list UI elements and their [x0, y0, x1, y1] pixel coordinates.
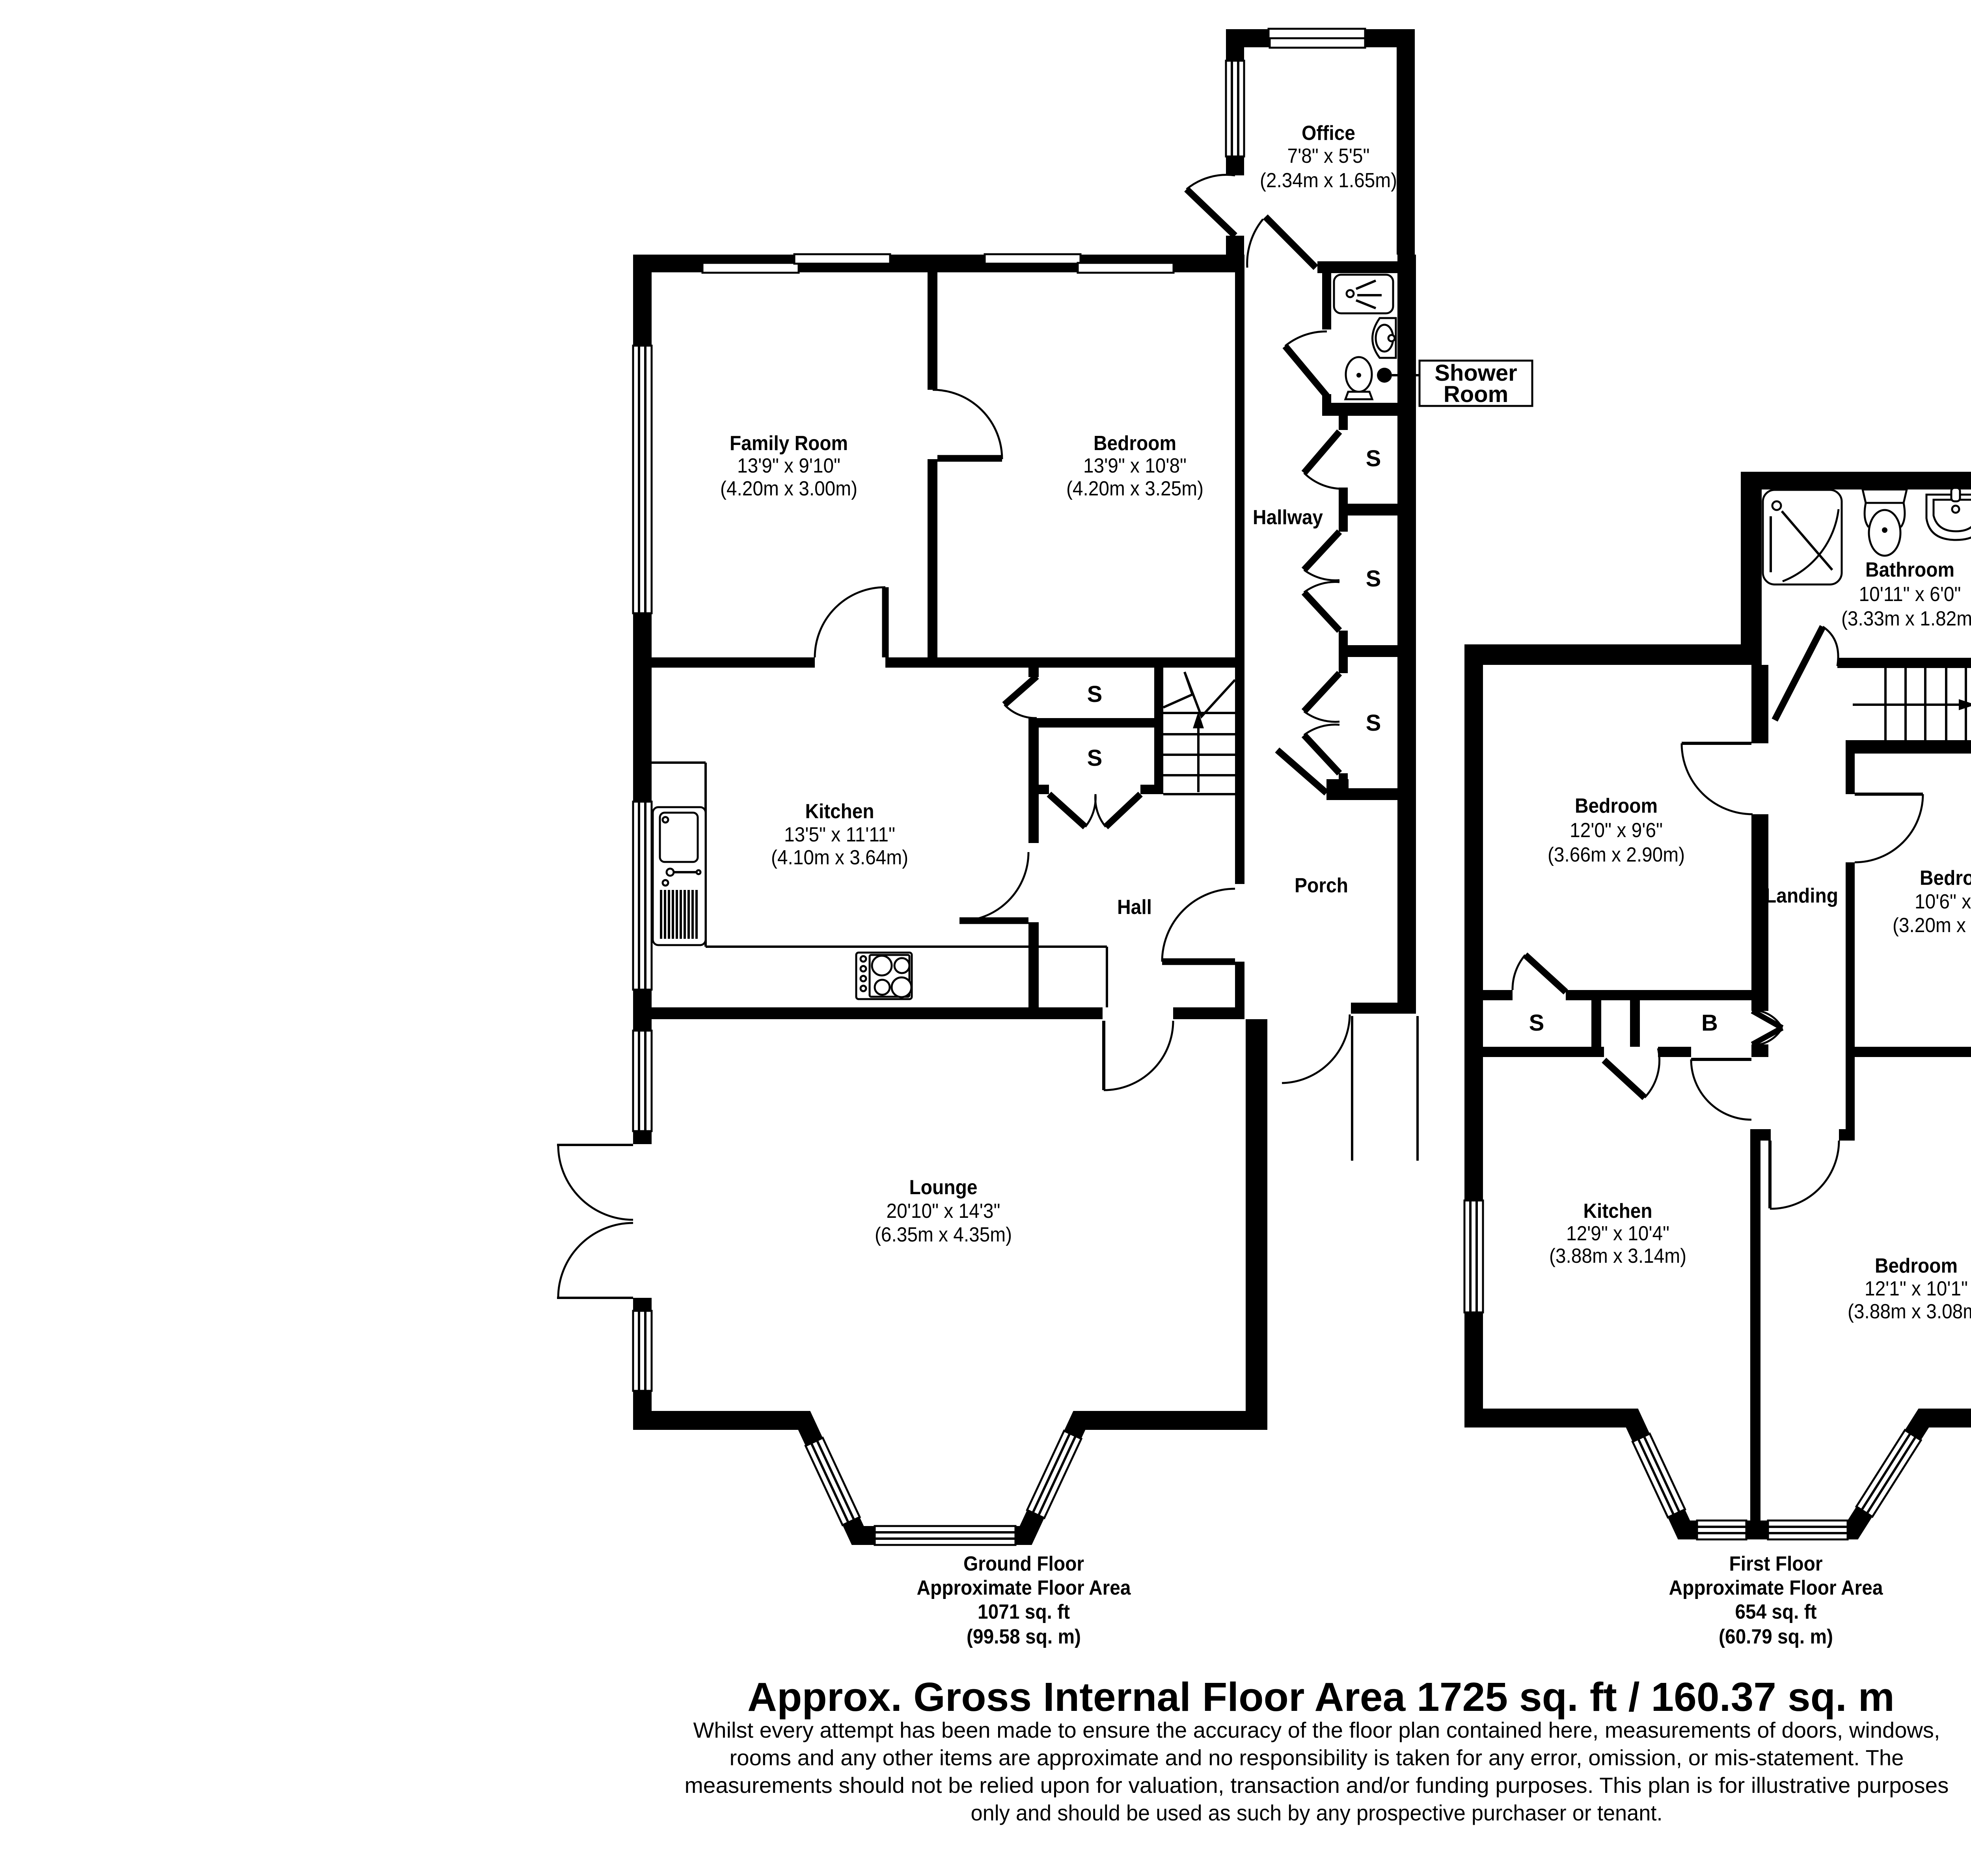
- svg-text:Ground Floor: Ground Floor: [963, 1552, 1084, 1575]
- svg-text:Bedroom: Bedroom: [1094, 432, 1176, 455]
- svg-text:S: S: [1087, 745, 1103, 771]
- svg-text:S: S: [1087, 681, 1103, 707]
- svg-text:Porch: Porch: [1295, 874, 1348, 897]
- svg-text:Bedroom: Bedroom: [1575, 795, 1658, 817]
- svg-text:1071 sq. ft: 1071 sq. ft: [978, 1601, 1070, 1623]
- svg-text:S: S: [1366, 710, 1381, 736]
- svg-text:Hall: Hall: [1117, 896, 1152, 919]
- svg-text:13'9" x 9'10": 13'9" x 9'10": [737, 454, 840, 477]
- svg-text:(3.88m x 3.14m): (3.88m x 3.14m): [1549, 1245, 1686, 1267]
- svg-text:12'9" x 10'4": 12'9" x 10'4": [1566, 1222, 1669, 1245]
- svg-text:(6.35m x 4.35m): (6.35m x 4.35m): [875, 1223, 1012, 1246]
- svg-text:Bedroom: Bedroom: [1920, 867, 1971, 890]
- svg-text:10'6" x 7'7": 10'6" x 7'7": [1915, 890, 1971, 913]
- svg-text:(3.20m x 2.31m): (3.20m x 2.31m): [1893, 914, 1971, 937]
- svg-text:Family Room: Family Room: [730, 432, 848, 455]
- svg-text:rooms and any other items are: rooms and any other items are approximat…: [730, 1745, 1904, 1770]
- svg-text:(4.20m x 3.25m): (4.20m x 3.25m): [1066, 477, 1203, 500]
- svg-text:Kitchen: Kitchen: [805, 800, 874, 823]
- svg-text:Bedroom: Bedroom: [1875, 1254, 1958, 1277]
- svg-text:Approximate Floor Area: Approximate Floor Area: [1669, 1576, 1883, 1599]
- svg-text:(60.79 sq. m): (60.79 sq. m): [1719, 1625, 1833, 1648]
- svg-text:13'9" x 10'8": 13'9" x 10'8": [1083, 454, 1187, 477]
- svg-text:10'11" x 6'0": 10'11" x 6'0": [1859, 583, 1961, 606]
- svg-text:7'8" x 5'5": 7'8" x 5'5": [1287, 145, 1370, 167]
- svg-text:Landing: Landing: [1765, 884, 1838, 907]
- svg-text:Approximate Floor Area: Approximate Floor Area: [917, 1576, 1131, 1599]
- svg-text:(3.33m x 1.82m): (3.33m x 1.82m): [1841, 607, 1971, 630]
- svg-text:654 sq. ft: 654 sq. ft: [1735, 1601, 1817, 1623]
- svg-text:Kitchen: Kitchen: [1584, 1200, 1652, 1223]
- svg-text:(3.66m x 2.90m): (3.66m x 2.90m): [1548, 843, 1685, 866]
- svg-text:(99.58 sq. m): (99.58 sq. m): [967, 1625, 1081, 1648]
- svg-text:S: S: [1366, 446, 1381, 471]
- svg-text:First Floor: First Floor: [1729, 1552, 1823, 1575]
- svg-text:Office: Office: [1302, 122, 1355, 145]
- svg-text:Room: Room: [1444, 382, 1508, 407]
- svg-text:12'0" x 9'6": 12'0" x 9'6": [1570, 819, 1663, 842]
- svg-text:Lounge: Lounge: [909, 1176, 978, 1199]
- svg-text:13'5" x 11'11": 13'5" x 11'11": [784, 823, 895, 846]
- svg-text:12'1" x 10'1": 12'1" x 10'1": [1865, 1277, 1968, 1300]
- svg-text:(4.10m x 3.64m): (4.10m x 3.64m): [771, 846, 908, 869]
- svg-text:only and should be used as suc: only and should be used as such by any p…: [971, 1800, 1663, 1825]
- svg-text:Whilst every attempt has been: Whilst every attempt has been made to en…: [693, 1718, 1940, 1742]
- svg-text:20'10" x 14'3": 20'10" x 14'3": [887, 1200, 1000, 1223]
- svg-text:(4.20m x 3.00m): (4.20m x 3.00m): [720, 477, 857, 500]
- svg-text:Bathroom: Bathroom: [1865, 558, 1954, 581]
- svg-text:B: B: [1701, 1010, 1718, 1036]
- svg-text:S: S: [1366, 566, 1381, 592]
- svg-text:S: S: [1529, 1010, 1544, 1036]
- svg-text:(2.34m x 1.65m): (2.34m x 1.65m): [1260, 169, 1397, 192]
- svg-text:(3.88m x 3.08m): (3.88m x 3.08m): [1848, 1300, 1971, 1323]
- svg-text:Hallway: Hallway: [1253, 506, 1323, 529]
- svg-text:Approx. Gross Internal Floor A: Approx. Gross Internal Floor Area 1725 s…: [747, 1674, 1895, 1720]
- svg-text:measurements should not be rel: measurements should not be relied upon f…: [685, 1773, 1949, 1798]
